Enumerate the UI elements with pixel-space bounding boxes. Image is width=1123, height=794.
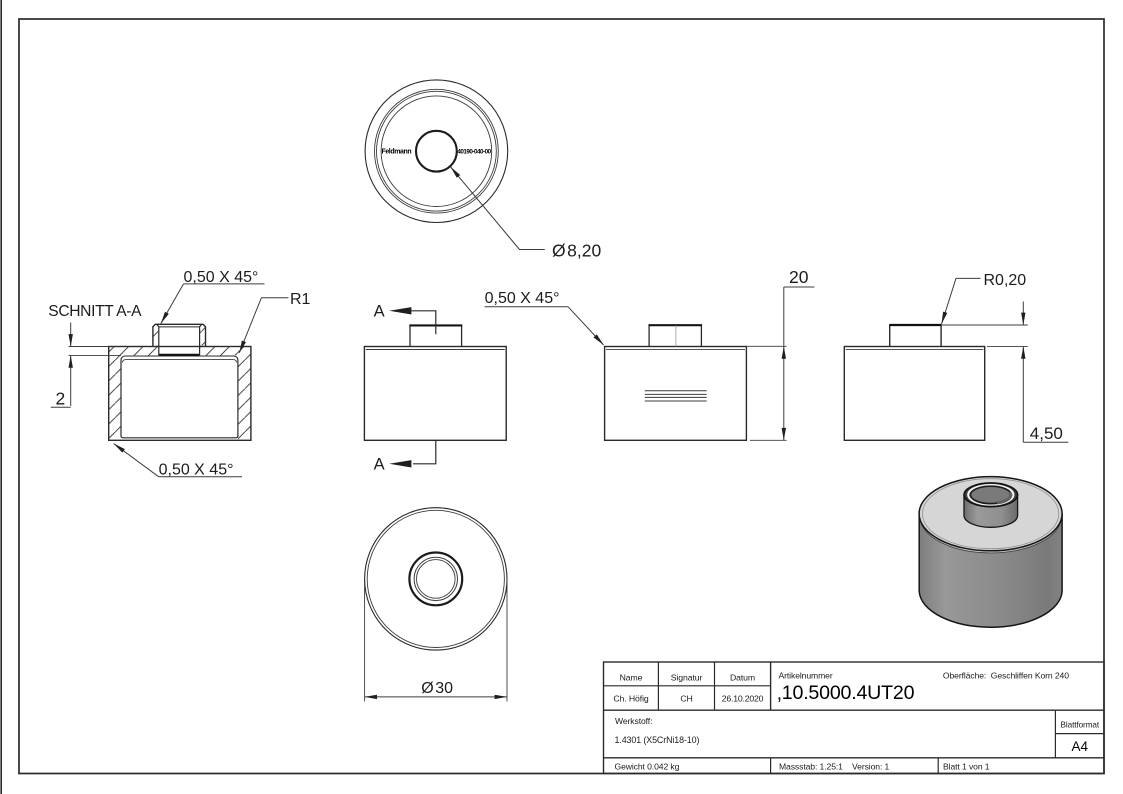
svg-text:Feldmann: Feldmann (381, 149, 411, 156)
svg-text:Massstab: 1.25:1 Version: 1: Massstab: 1.25:1 Version: 1 (779, 762, 890, 772)
svg-text:Name: Name (620, 673, 643, 683)
svg-text:1.4301 (X5CrNi18-10): 1.4301 (X5CrNi18-10) (615, 735, 700, 745)
svg-text:4,50: 4,50 (1030, 424, 1063, 443)
svg-text:Ø8,20: Ø8,20 (552, 241, 601, 261)
svg-text:2: 2 (56, 389, 66, 409)
svg-text:10.5000.4UT20: 10.5000.4UT20 (782, 682, 915, 704)
svg-text:Gewicht 0.042 kg: Gewicht 0.042 kg (615, 762, 680, 772)
svg-text:A4: A4 (1072, 739, 1089, 754)
svg-text:Blatt 1 von 1: Blatt 1 von 1 (943, 762, 990, 772)
svg-text:Blattformat: Blattformat (1061, 720, 1100, 729)
svg-text:Oberfläche: Geschliffen Korn: Oberfläche: Geschliffen Korn 240 (943, 670, 1069, 680)
svg-text:20: 20 (789, 267, 809, 287)
svg-text:26.10.2020: 26.10.2020 (722, 693, 764, 703)
svg-text:Artikelnummer: Artikelnummer (779, 670, 833, 680)
svg-text:0,50 X 45°: 0,50 X 45° (159, 462, 234, 479)
svg-text:Signatur: Signatur (671, 673, 703, 683)
svg-text:Ch. Höfig: Ch. Höfig (613, 693, 649, 703)
svg-text:R0,20: R0,20 (984, 272, 1027, 289)
svg-text:0,50 X 45°: 0,50 X 45° (485, 290, 560, 307)
svg-text:Werkstoff:: Werkstoff: (615, 716, 652, 726)
svg-text:Datum: Datum (730, 673, 755, 683)
svg-text:40190-040-00: 40190-040-00 (457, 148, 491, 155)
svg-text:A: A (374, 456, 385, 474)
svg-text:R1: R1 (290, 291, 311, 308)
svg-text:CH: CH (680, 693, 692, 703)
svg-text:SCHNITT A-A: SCHNITT A-A (48, 303, 142, 320)
svg-text:A: A (374, 303, 385, 321)
svg-text:Ø30: Ø30 (421, 680, 453, 697)
svg-text:0,50 X 45°: 0,50 X 45° (184, 269, 259, 286)
